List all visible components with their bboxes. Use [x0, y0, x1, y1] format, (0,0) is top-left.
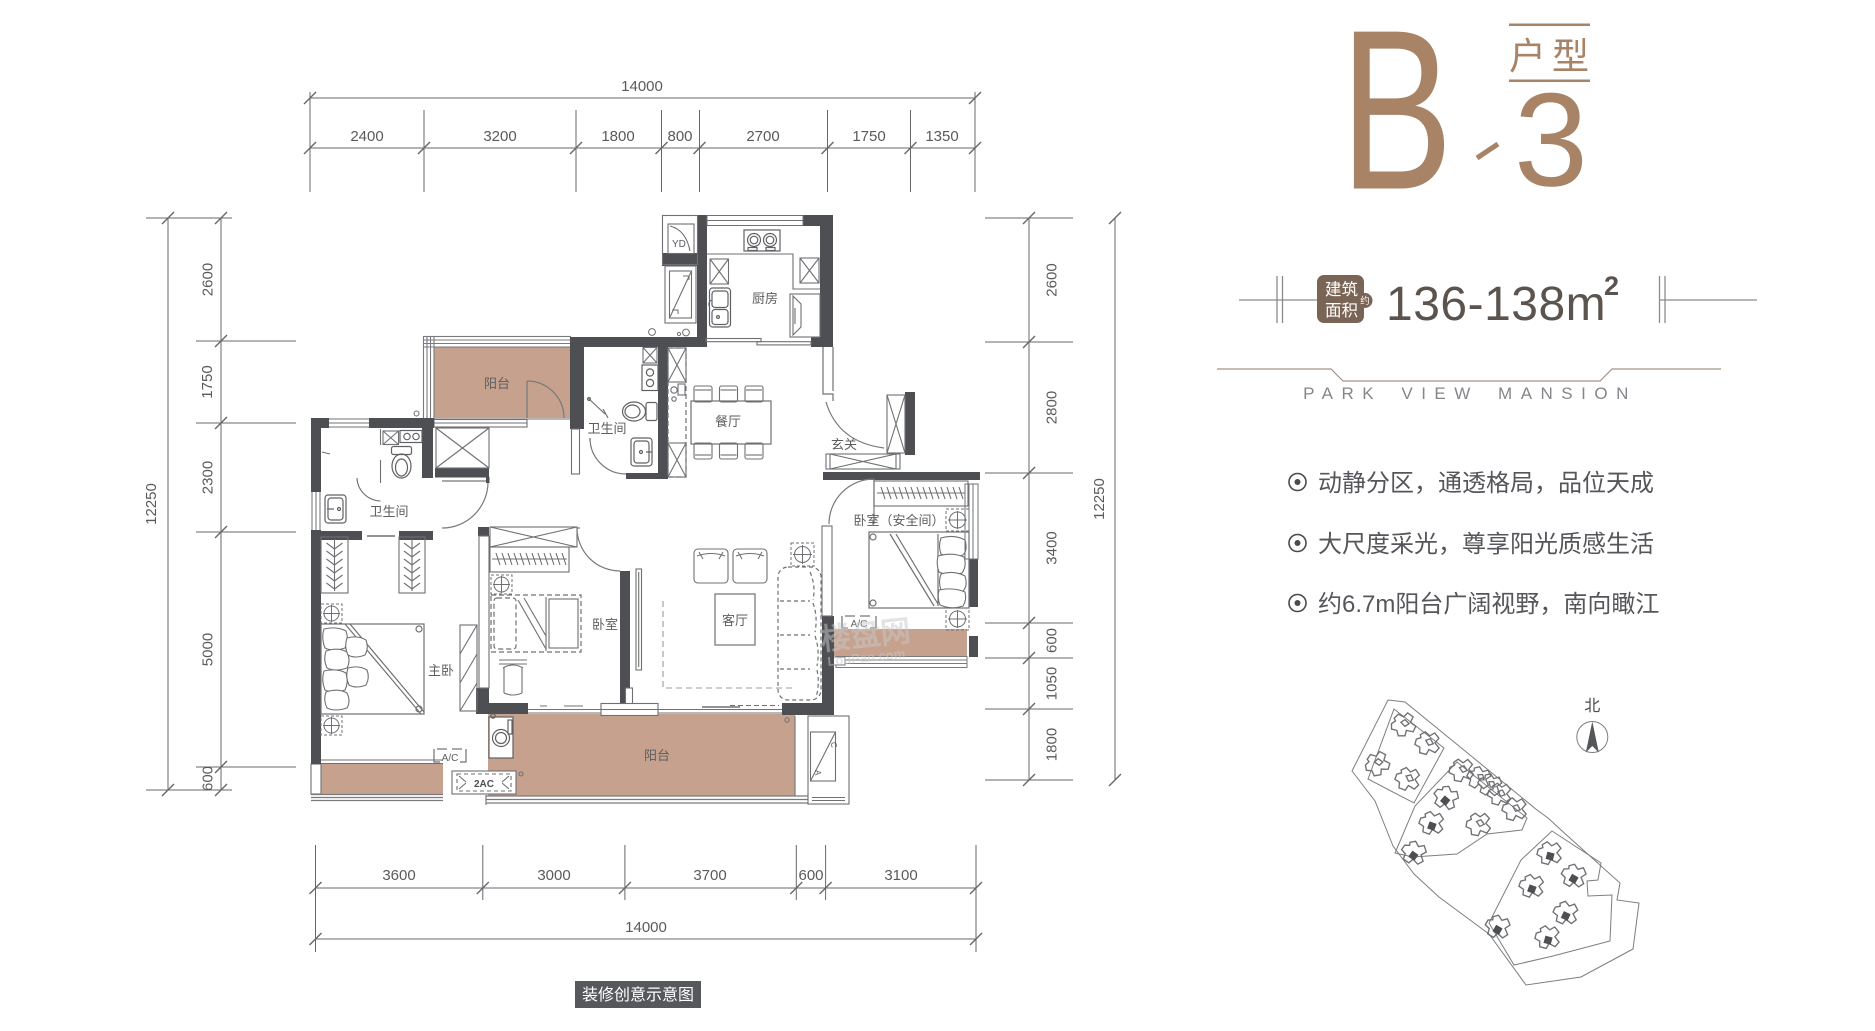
svg-text:阳台: 阳台 [644, 748, 670, 763]
svg-text:A/C: A/C [442, 753, 459, 764]
svg-text:2300: 2300 [200, 461, 217, 494]
svg-text:2800: 2800 [1044, 391, 1061, 424]
svg-text:2700: 2700 [746, 128, 779, 145]
svg-text:C: C [829, 742, 838, 748]
svg-text:3600: 3600 [382, 867, 415, 884]
svg-text:2: 2 [1604, 271, 1619, 301]
svg-text:A: A [813, 770, 822, 776]
svg-text:600: 600 [1044, 628, 1061, 653]
svg-text:客厅: 客厅 [722, 613, 748, 628]
svg-text:PARK VIEW MANSION: PARK VIEW MANSION [1303, 384, 1637, 403]
svg-text:2600: 2600 [200, 263, 217, 296]
svg-text:卧室（安全间）: 卧室（安全间） [853, 513, 944, 528]
svg-text:14000: 14000 [621, 78, 663, 95]
svg-text:12250: 12250 [1091, 478, 1108, 520]
svg-text:2400: 2400 [350, 128, 383, 145]
svg-text:建筑: 建筑 [1325, 280, 1359, 299]
svg-text:装修创意示意图: 装修创意示意图 [582, 985, 694, 1004]
svg-text:2600: 2600 [1044, 263, 1061, 296]
svg-text:600: 600 [200, 766, 217, 791]
svg-text:面积: 面积 [1325, 301, 1358, 320]
svg-text:1750: 1750 [199, 365, 216, 398]
svg-text:3400: 3400 [1044, 531, 1061, 564]
svg-text:1350: 1350 [925, 128, 958, 145]
svg-text:3700: 3700 [693, 867, 726, 884]
svg-text:动静分区，通透格局，品位天成: 动静分区，通透格局，品位天成 [1318, 470, 1654, 497]
svg-text:餐厅: 餐厅 [715, 414, 741, 429]
svg-text:厨房: 厨房 [752, 291, 778, 306]
svg-text:3200: 3200 [483, 128, 516, 145]
svg-text:1750: 1750 [852, 128, 885, 145]
svg-text:阳台: 阳台 [484, 376, 510, 391]
svg-text:卧室: 卧室 [592, 617, 618, 632]
svg-text:1050: 1050 [1044, 667, 1061, 700]
svg-text:卫生间: 卫生间 [369, 504, 408, 519]
svg-text:12250: 12250 [143, 483, 160, 525]
svg-text:1800: 1800 [601, 128, 634, 145]
svg-text:大尺度采光，尊享阳光质感生活: 大尺度采光，尊享阳光质感生活 [1318, 531, 1654, 558]
svg-text:卫生间: 卫生间 [587, 421, 626, 436]
svg-text:北: 北 [1584, 697, 1600, 715]
svg-text:14000: 14000 [625, 919, 667, 936]
svg-text:B: B [1340, 0, 1453, 238]
svg-text:1800: 1800 [1044, 728, 1061, 761]
svg-text:主卧: 主卧 [428, 663, 454, 678]
svg-text:约6.7m阳台广阔视野，南向瞰江: 约6.7m阳台广阔视野，南向瞰江 [1318, 591, 1659, 618]
svg-text:玄关: 玄关 [831, 437, 857, 452]
svg-text:YD: YD [672, 239, 686, 250]
svg-text:2AC: 2AC [474, 779, 494, 790]
svg-text:600: 600 [798, 867, 823, 884]
svg-text:3: 3 [1514, 67, 1588, 215]
svg-text:136-138m: 136-138m [1386, 278, 1606, 331]
svg-text:3100: 3100 [884, 867, 917, 884]
svg-text:5000: 5000 [200, 633, 217, 666]
svg-text:约: 约 [1360, 295, 1370, 307]
svg-text:800: 800 [667, 128, 692, 145]
svg-text:3000: 3000 [537, 867, 570, 884]
